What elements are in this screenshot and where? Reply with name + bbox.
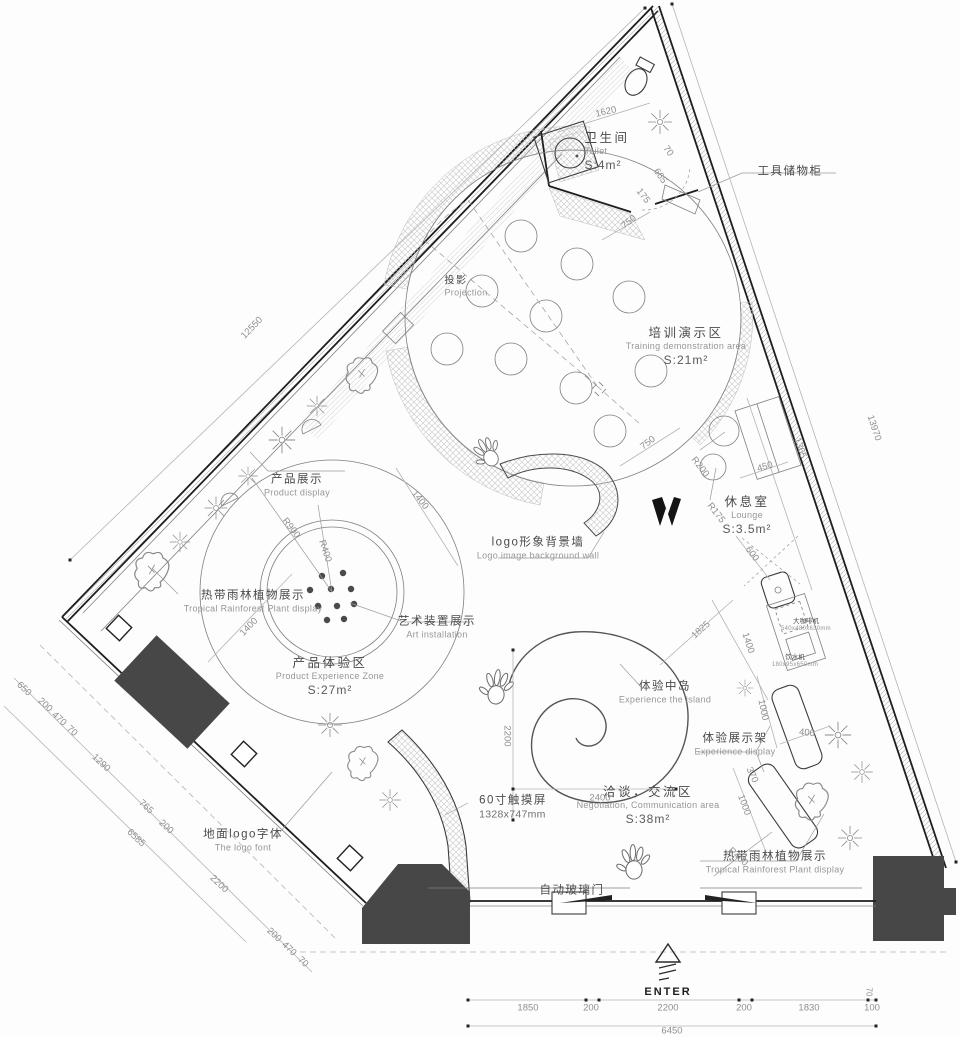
note-auto-door: 自动玻璃门: [540, 884, 605, 899]
island-en: Experience the island: [619, 695, 711, 707]
note-island: 体验中岛 Experience the island: [619, 680, 711, 707]
dim-100: 100: [864, 1003, 880, 1014]
area-label-toilet: 卫生间 Toilet S:4m²: [584, 130, 629, 174]
lounge-en: Lounge: [722, 510, 771, 522]
note-water-dispenser: 饮水机 180x95x650mm: [772, 654, 818, 670]
experience-display-en: Experience display: [695, 747, 776, 759]
projection-zh: 投影: [444, 275, 487, 288]
lounge-area: S:3.5m²: [722, 522, 771, 538]
experience-island: [508, 632, 688, 803]
coffee-machine-zh: 大咖啡机: [781, 618, 831, 626]
walkway-hatch: [384, 126, 753, 505]
product-experience-area: S:27m²: [276, 683, 384, 699]
projection-cone: [424, 200, 640, 424]
floor-logo-zh: 地面logo字体: [203, 828, 283, 843]
dim-200-e: 200: [736, 1003, 752, 1014]
rainforest-left-zh: 热带雨林植物展示: [184, 589, 323, 604]
training-en: Training demonstration area: [626, 341, 746, 353]
toilet-area: S:4m²: [584, 158, 629, 174]
water-dispenser-zh: 饮水机: [772, 654, 818, 662]
dim-200-d: 200: [583, 1003, 599, 1014]
training-zh: 培训演示区: [626, 325, 746, 341]
tool-cabinet-zh: 工具储物柜: [758, 165, 823, 180]
rainforest-left-en: Tropical Rainforest Plant display: [184, 604, 323, 616]
note-art-installation: 艺术装置展示 Art installation: [398, 615, 476, 642]
experience-display-zh: 体验展示架: [695, 732, 776, 747]
dim-2400: 2400: [589, 793, 610, 804]
floor-plan: 卫生间 Toilet S:4m² 培训演示区 Training demonstr…: [0, 0, 960, 1037]
water-dispenser-size: 180x95x650mm: [772, 662, 818, 670]
logo-wall-en: Logo image background wall: [477, 551, 599, 563]
product-display-zh: 产品展示: [264, 473, 330, 488]
note-product-display: 产品展示 Product display: [264, 473, 330, 500]
area-label-training: 培训演示区 Training demonstration area S:21m²: [626, 325, 746, 369]
dim-400: 400: [799, 727, 816, 739]
projection-en: Projection: [444, 288, 487, 300]
dim-2200-front: 2200: [657, 1003, 678, 1014]
note-logo-wall: logo形象背景墙 Logo image background wall: [477, 536, 599, 563]
area-label-product-experience: 产品体验区 Product Experience Zone S:27m²: [276, 655, 384, 699]
note-coffee-machine: 大咖啡机 540x480x630mm: [781, 618, 831, 634]
touchscreen-zh: 60寸触摸屏: [479, 794, 547, 809]
area-label-negotiation: 洽谈，交流区 Negotiation, Communication area S…: [577, 784, 720, 828]
product-experience-zh: 产品体验区: [276, 655, 384, 671]
note-tool-cabinet: 工具储物柜: [758, 165, 823, 180]
dim-70-front: 70: [865, 988, 874, 997]
dim-2200-island: 2200: [502, 725, 513, 746]
lounge-zh: 休息室: [722, 494, 771, 510]
note-touchscreen: 60寸触摸屏 1328x747mm: [479, 794, 547, 823]
product-experience-en: Product Experience Zone: [276, 671, 384, 683]
enter-label: ENTER: [644, 985, 691, 999]
toilet-en: Toilet: [584, 146, 629, 158]
dim-6450: 6450: [661, 1026, 682, 1037]
art-installation-zh: 艺术装置展示: [398, 615, 476, 630]
training-area: S:21m²: [626, 353, 746, 369]
floor-logo-en: The logo font: [203, 843, 283, 855]
note-experience-display: 体验展示架 Experience display: [695, 732, 776, 759]
toilet-zh: 卫生间: [584, 130, 629, 146]
art-installation-en: Art installation: [398, 630, 476, 642]
rainforest-right-en: Tropical Rainforest Plant display: [706, 865, 845, 877]
note-floor-logo: 地面logo字体 The logo font: [203, 828, 283, 855]
door-leaf: [652, 497, 681, 526]
touchscreen-size: 1328x747mm: [479, 809, 547, 823]
negotiation-area: S:38m²: [577, 812, 720, 828]
enter-arrow-icon: [656, 944, 680, 980]
logo-wall-zh: logo形象背景墙: [477, 536, 599, 551]
product-display-en: Product display: [264, 488, 330, 500]
area-label-lounge: 休息室 Lounge S:3.5m²: [722, 494, 771, 538]
note-rainforest-left: 热带雨林植物展示 Tropical Rainforest Plant displ…: [184, 589, 323, 616]
dim-1830: 1830: [798, 1003, 819, 1014]
island-zh: 体验中岛: [619, 680, 711, 695]
plan-drawing: [0, 0, 960, 1037]
dim-1850: 1850: [517, 1003, 538, 1014]
auto-door-zh: 自动玻璃门: [540, 884, 605, 899]
note-projection: 投影 Projection: [444, 275, 487, 300]
coffee-machine-size: 540x480x630mm: [781, 626, 831, 634]
